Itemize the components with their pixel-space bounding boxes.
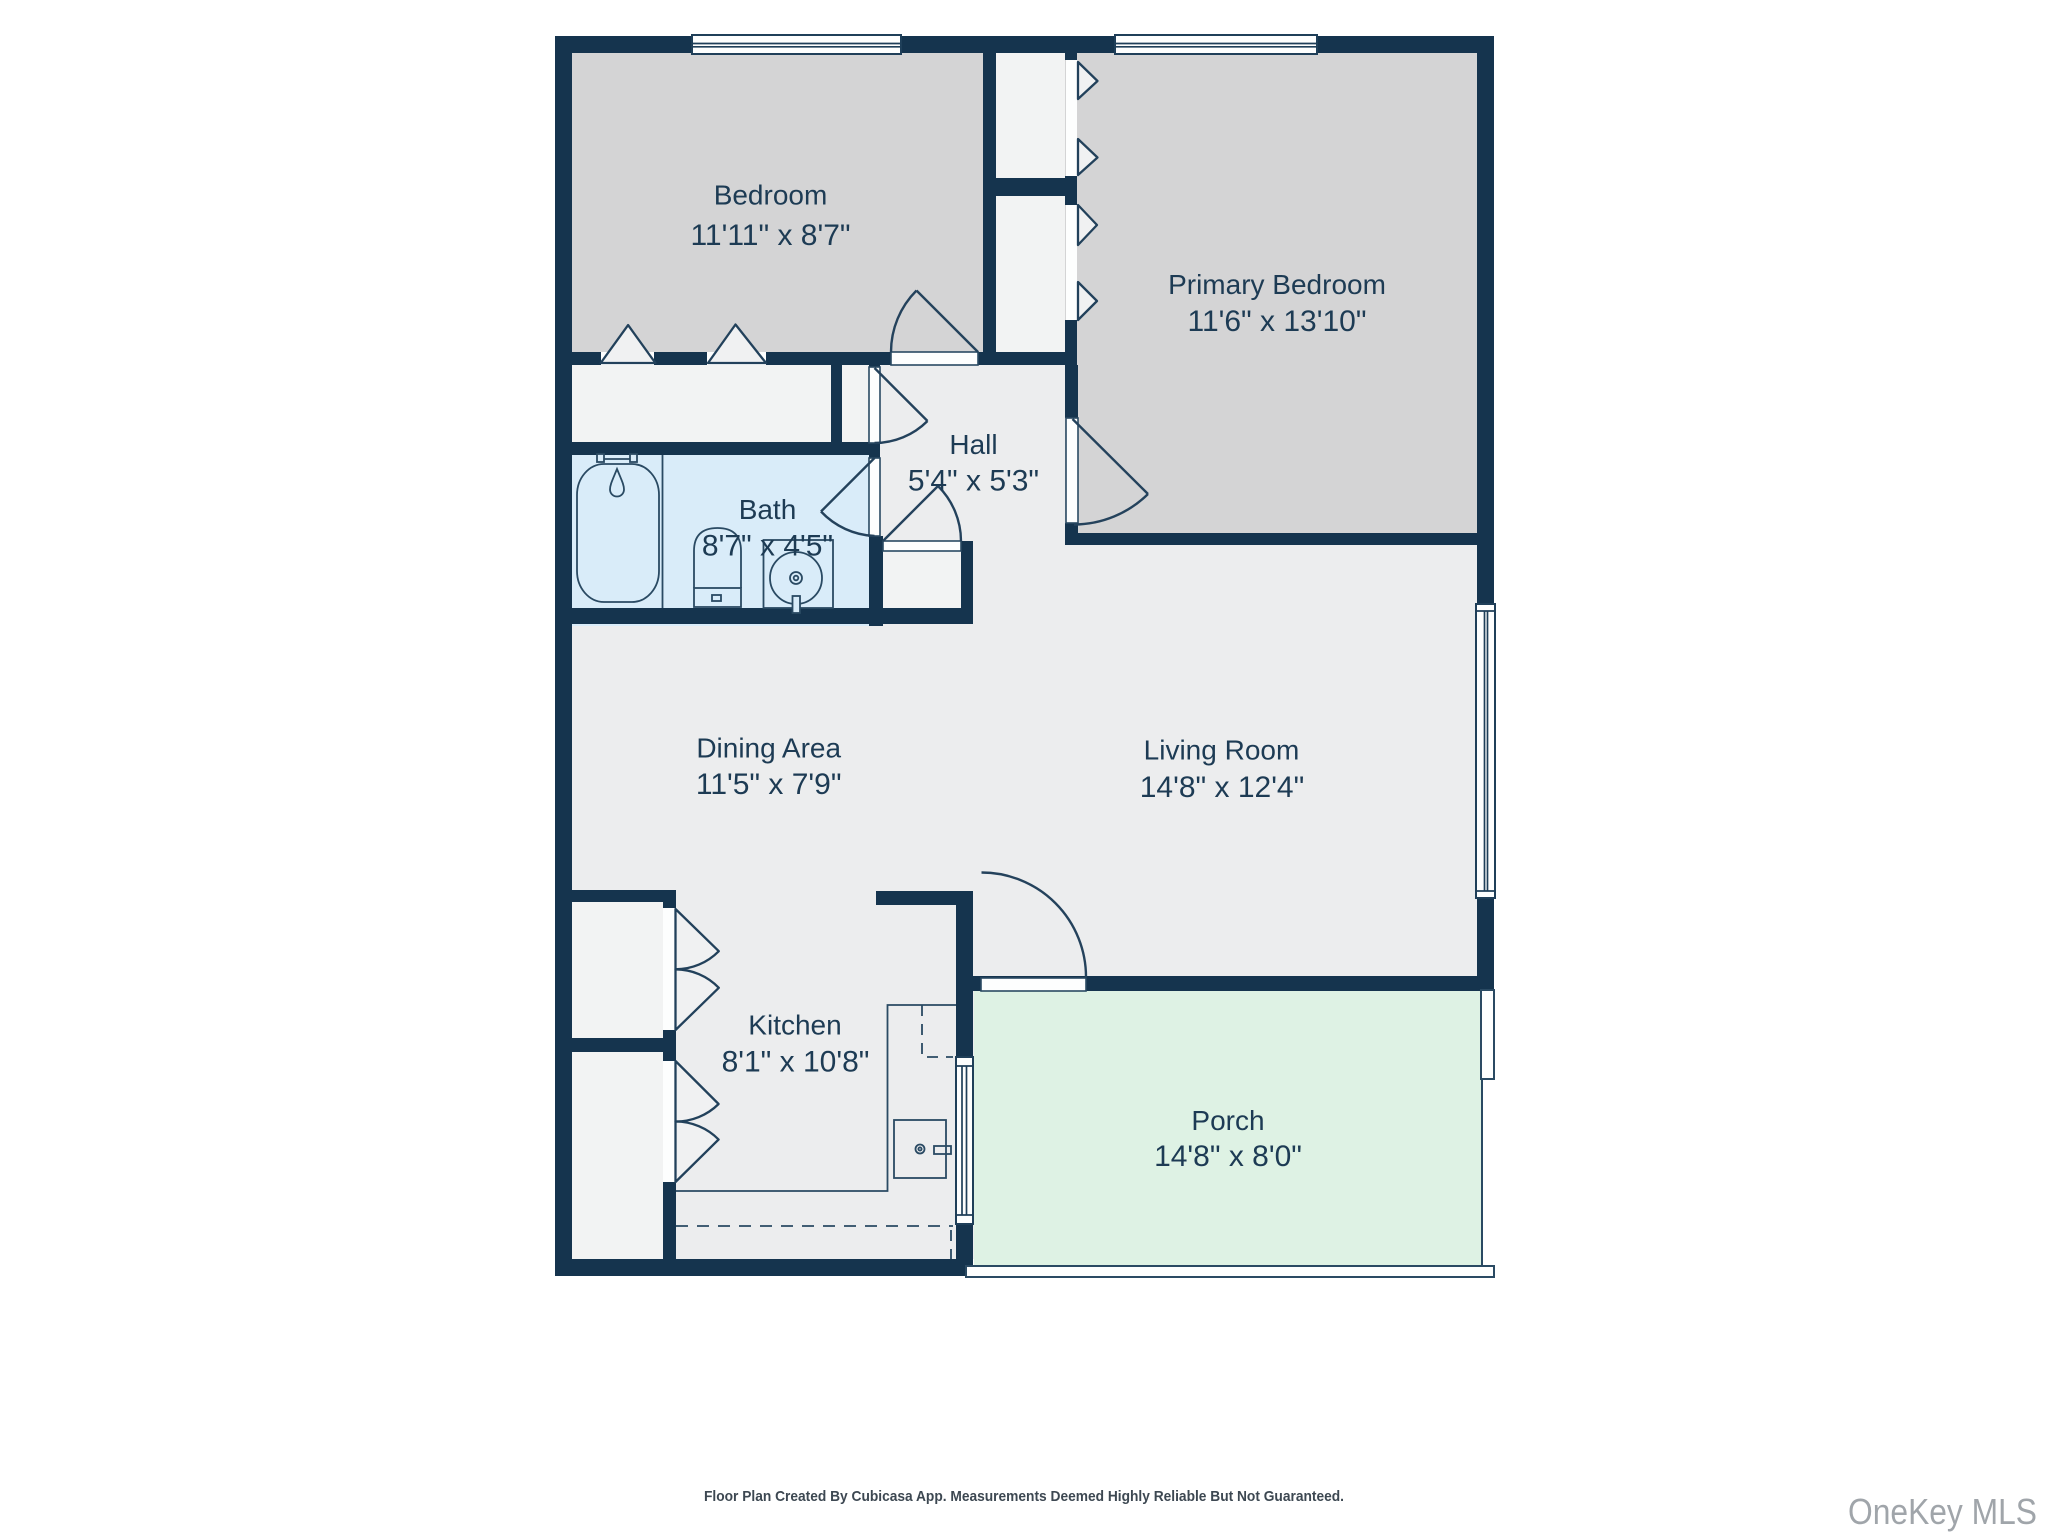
- svg-text:Hall: Hall: [949, 429, 997, 460]
- svg-text:Floor Plan Created By Cubicasa: Floor Plan Created By Cubicasa App. Meas…: [704, 1489, 1344, 1505]
- svg-text:Primary Bedroom: Primary Bedroom: [1168, 269, 1386, 300]
- svg-text:8'1" x 10'8": 8'1" x 10'8": [722, 1046, 870, 1079]
- svg-text:14'8" x 12'4": 14'8" x 12'4": [1140, 771, 1305, 804]
- svg-text:Bedroom: Bedroom: [714, 180, 828, 211]
- svg-text:5'4" x 5'3": 5'4" x 5'3": [908, 465, 1039, 498]
- svg-text:Kitchen: Kitchen: [748, 1010, 841, 1041]
- svg-text:Living Room: Living Room: [1144, 735, 1300, 766]
- svg-text:OneKey MLS: OneKey MLS: [1848, 1491, 2037, 1532]
- svg-text:Porch: Porch: [1191, 1105, 1264, 1136]
- svg-text:Bath: Bath: [739, 494, 797, 525]
- svg-text:11'5" x 7'9": 11'5" x 7'9": [696, 768, 842, 801]
- svg-text:11'6" x 13'10": 11'6" x 13'10": [1188, 305, 1367, 338]
- svg-text:8'7" x 4'5": 8'7" x 4'5": [702, 530, 833, 563]
- svg-text:11'11" x 8'7": 11'11" x 8'7": [690, 219, 850, 252]
- svg-text:14'8" x 8'0": 14'8" x 8'0": [1154, 1140, 1302, 1173]
- svg-text:Dining Area: Dining Area: [696, 733, 841, 764]
